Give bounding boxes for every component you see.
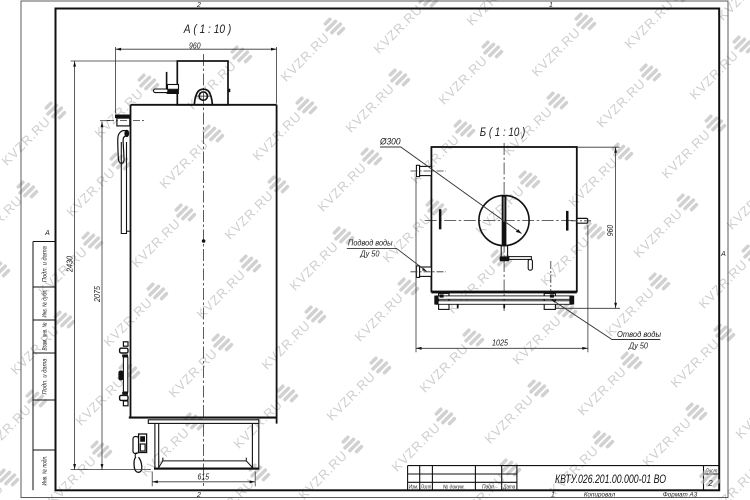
svg-text:615: 615: [198, 471, 210, 481]
svg-text:№ докум.: № докум.: [443, 484, 465, 490]
svg-text:Ду 50: Ду 50: [360, 250, 380, 259]
svg-text:Ø300: Ø300: [379, 137, 401, 147]
svg-text:Дата: Дата: [502, 484, 515, 490]
svg-text:Подвод воды: Подвод воды: [348, 238, 393, 247]
svg-text:2: 2: [196, 492, 201, 499]
svg-text:960: 960: [605, 225, 615, 237]
svg-text:Инв. № дубл.: Инв. № дубл.: [42, 290, 49, 318]
svg-text:Б ( 1 : 10 ): Б ( 1 : 10 ): [480, 125, 526, 139]
svg-text:Изм.: Изм.: [409, 484, 419, 490]
svg-text:Отвод воды: Отвод воды: [617, 330, 661, 339]
svg-text:Подп.: Подп.: [482, 484, 495, 490]
svg-text:Подп. и дата: Подп. и дата: [43, 246, 49, 283]
svg-text:Копировал: Копировал: [584, 492, 616, 499]
svg-text:Взам. инв. №: Взам. инв. №: [42, 322, 49, 350]
svg-text:А: А: [720, 251, 726, 258]
svg-text:А ( 1 : 10 ): А ( 1 : 10 ): [183, 22, 231, 36]
svg-text:Инв. № подл.: Инв. № подл.: [42, 456, 49, 486]
svg-text:960: 960: [189, 40, 201, 50]
svg-text:КВТУ.026.201.00.000-01 ВО: КВТУ.026.201.00.000-01 ВО: [555, 472, 666, 486]
svg-text:2075: 2075: [92, 286, 102, 303]
svg-text:1: 1: [551, 492, 555, 499]
svg-text:Лист: Лист: [420, 484, 431, 490]
svg-text:Подп. и дата: Подп. и дата: [43, 358, 49, 395]
svg-text:Формат А3: Формат А3: [663, 492, 698, 499]
svg-text:2430: 2430: [65, 256, 75, 273]
svg-text:2: 2: [707, 479, 713, 488]
svg-text:А: А: [44, 230, 50, 237]
svg-text:Ду 50: Ду 50: [628, 342, 648, 351]
svg-text:1025: 1025: [492, 337, 508, 347]
